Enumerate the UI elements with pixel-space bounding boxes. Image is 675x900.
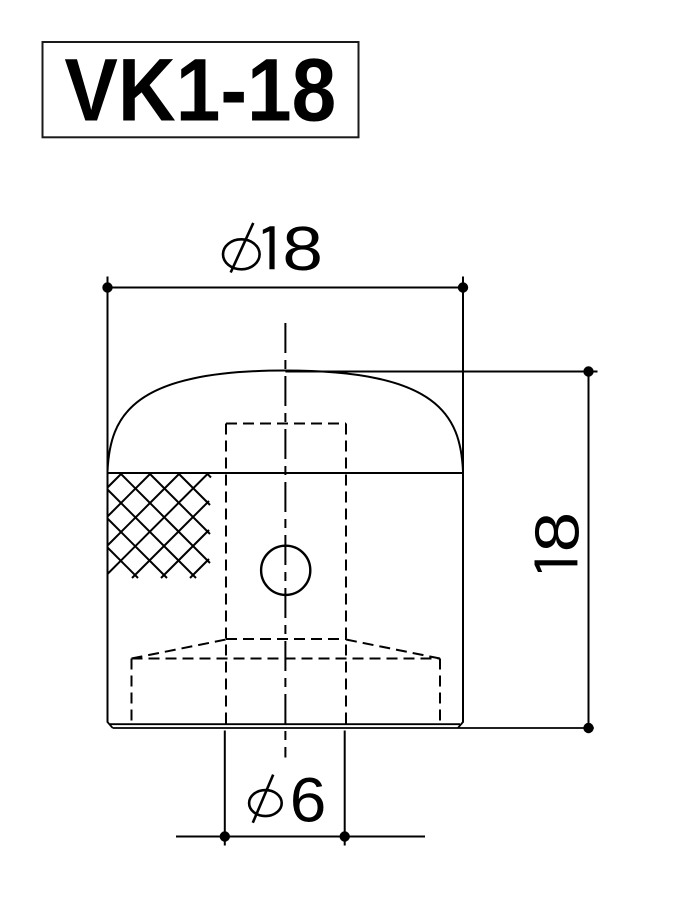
svg-text:6: 6 xyxy=(290,765,327,835)
svg-text:VK1-18: VK1-18 xyxy=(64,40,336,140)
